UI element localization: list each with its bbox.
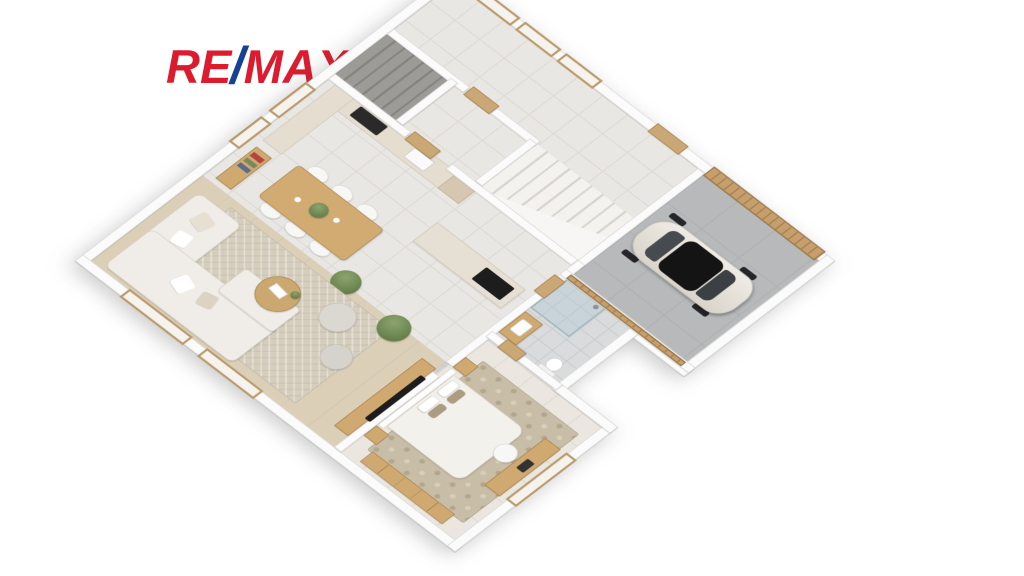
logo-slash: / <box>230 37 244 95</box>
logo-text-re: RE <box>166 40 231 93</box>
